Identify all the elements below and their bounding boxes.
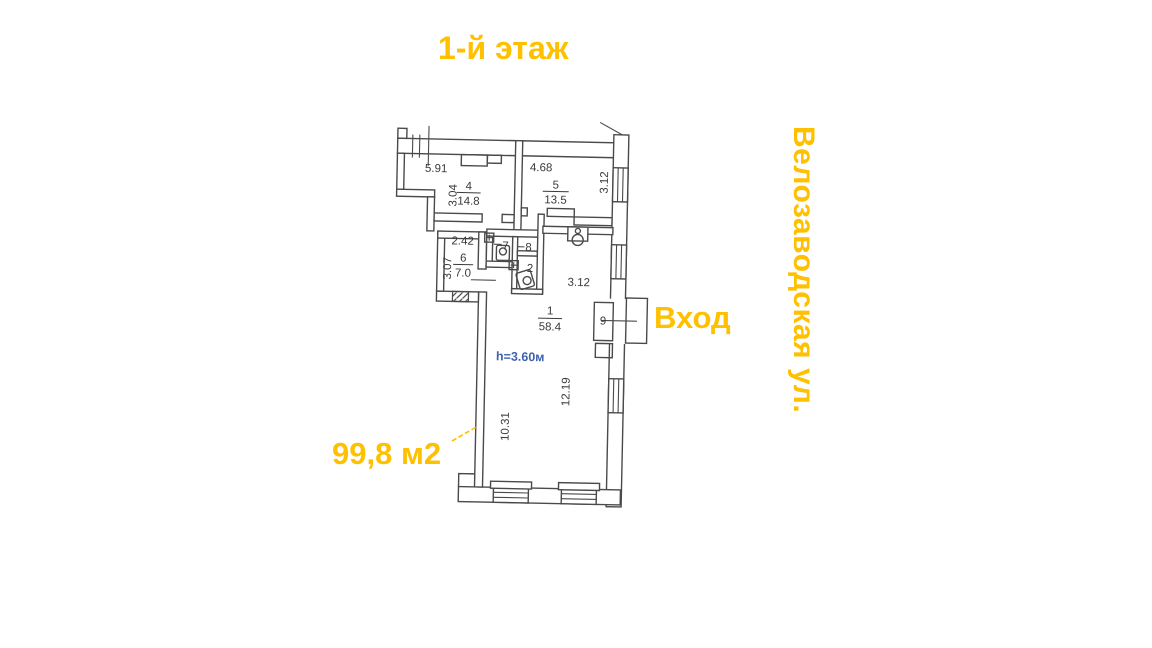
floor-plan-drawing: 5.91 3.04 4 14.8 4.68 5 13.5 3.12 2.42 3…: [0, 0, 1152, 648]
room-5-width-dim: 4.68: [530, 162, 553, 174]
window-right-bottom: [608, 379, 624, 413]
street-name-label: Велозаводская ул.: [786, 126, 820, 413]
hatched-wall-segment: [452, 291, 468, 301]
room-6-depth-dim: 3.07: [442, 257, 454, 280]
room-7-number: 7: [502, 240, 509, 252]
room-4-number: 4: [465, 181, 472, 193]
room-1-number: 1: [547, 305, 554, 317]
window-bottom-left: [490, 481, 531, 503]
floor-plan-page: 5.91 3.04 4 14.8 4.68 5 13.5 3.12 2.42 3…: [0, 0, 1152, 648]
room-6-number: 6: [460, 253, 467, 265]
room-5-depth-dim: 3.12: [599, 171, 611, 194]
room-6-width-dim: 2.42: [451, 235, 474, 247]
ceiling-height-note: h=3.60м: [496, 349, 545, 364]
entrance-label: Вход: [654, 300, 731, 336]
room-1-top-dim: 3.12: [567, 277, 590, 289]
room-9-number: 9: [600, 315, 607, 327]
room-6-area: 7.0: [455, 267, 471, 279]
room-8-number: 8: [525, 242, 532, 254]
room-2-number: 2: [527, 263, 534, 275]
room-1-right-dim: 12.19: [560, 377, 573, 406]
room-4-area: 14.8: [457, 195, 480, 207]
standpipe-icon: [568, 227, 588, 246]
room-1-left-dim: 10.31: [499, 412, 512, 441]
room-5-area: 13.5: [544, 194, 567, 206]
window-bottom-right: [558, 483, 599, 505]
room-1-area: 58.4: [539, 321, 562, 333]
room-5-number: 5: [552, 179, 559, 191]
room-4-width-dim: 5.91: [425, 163, 448, 175]
page-title: 1-й этаж: [438, 30, 568, 67]
total-area-label: 99,8 м2: [332, 436, 441, 472]
window-right-top: [612, 168, 628, 202]
window-right-middle: [611, 245, 627, 279]
area-leader-line: [452, 426, 478, 441]
